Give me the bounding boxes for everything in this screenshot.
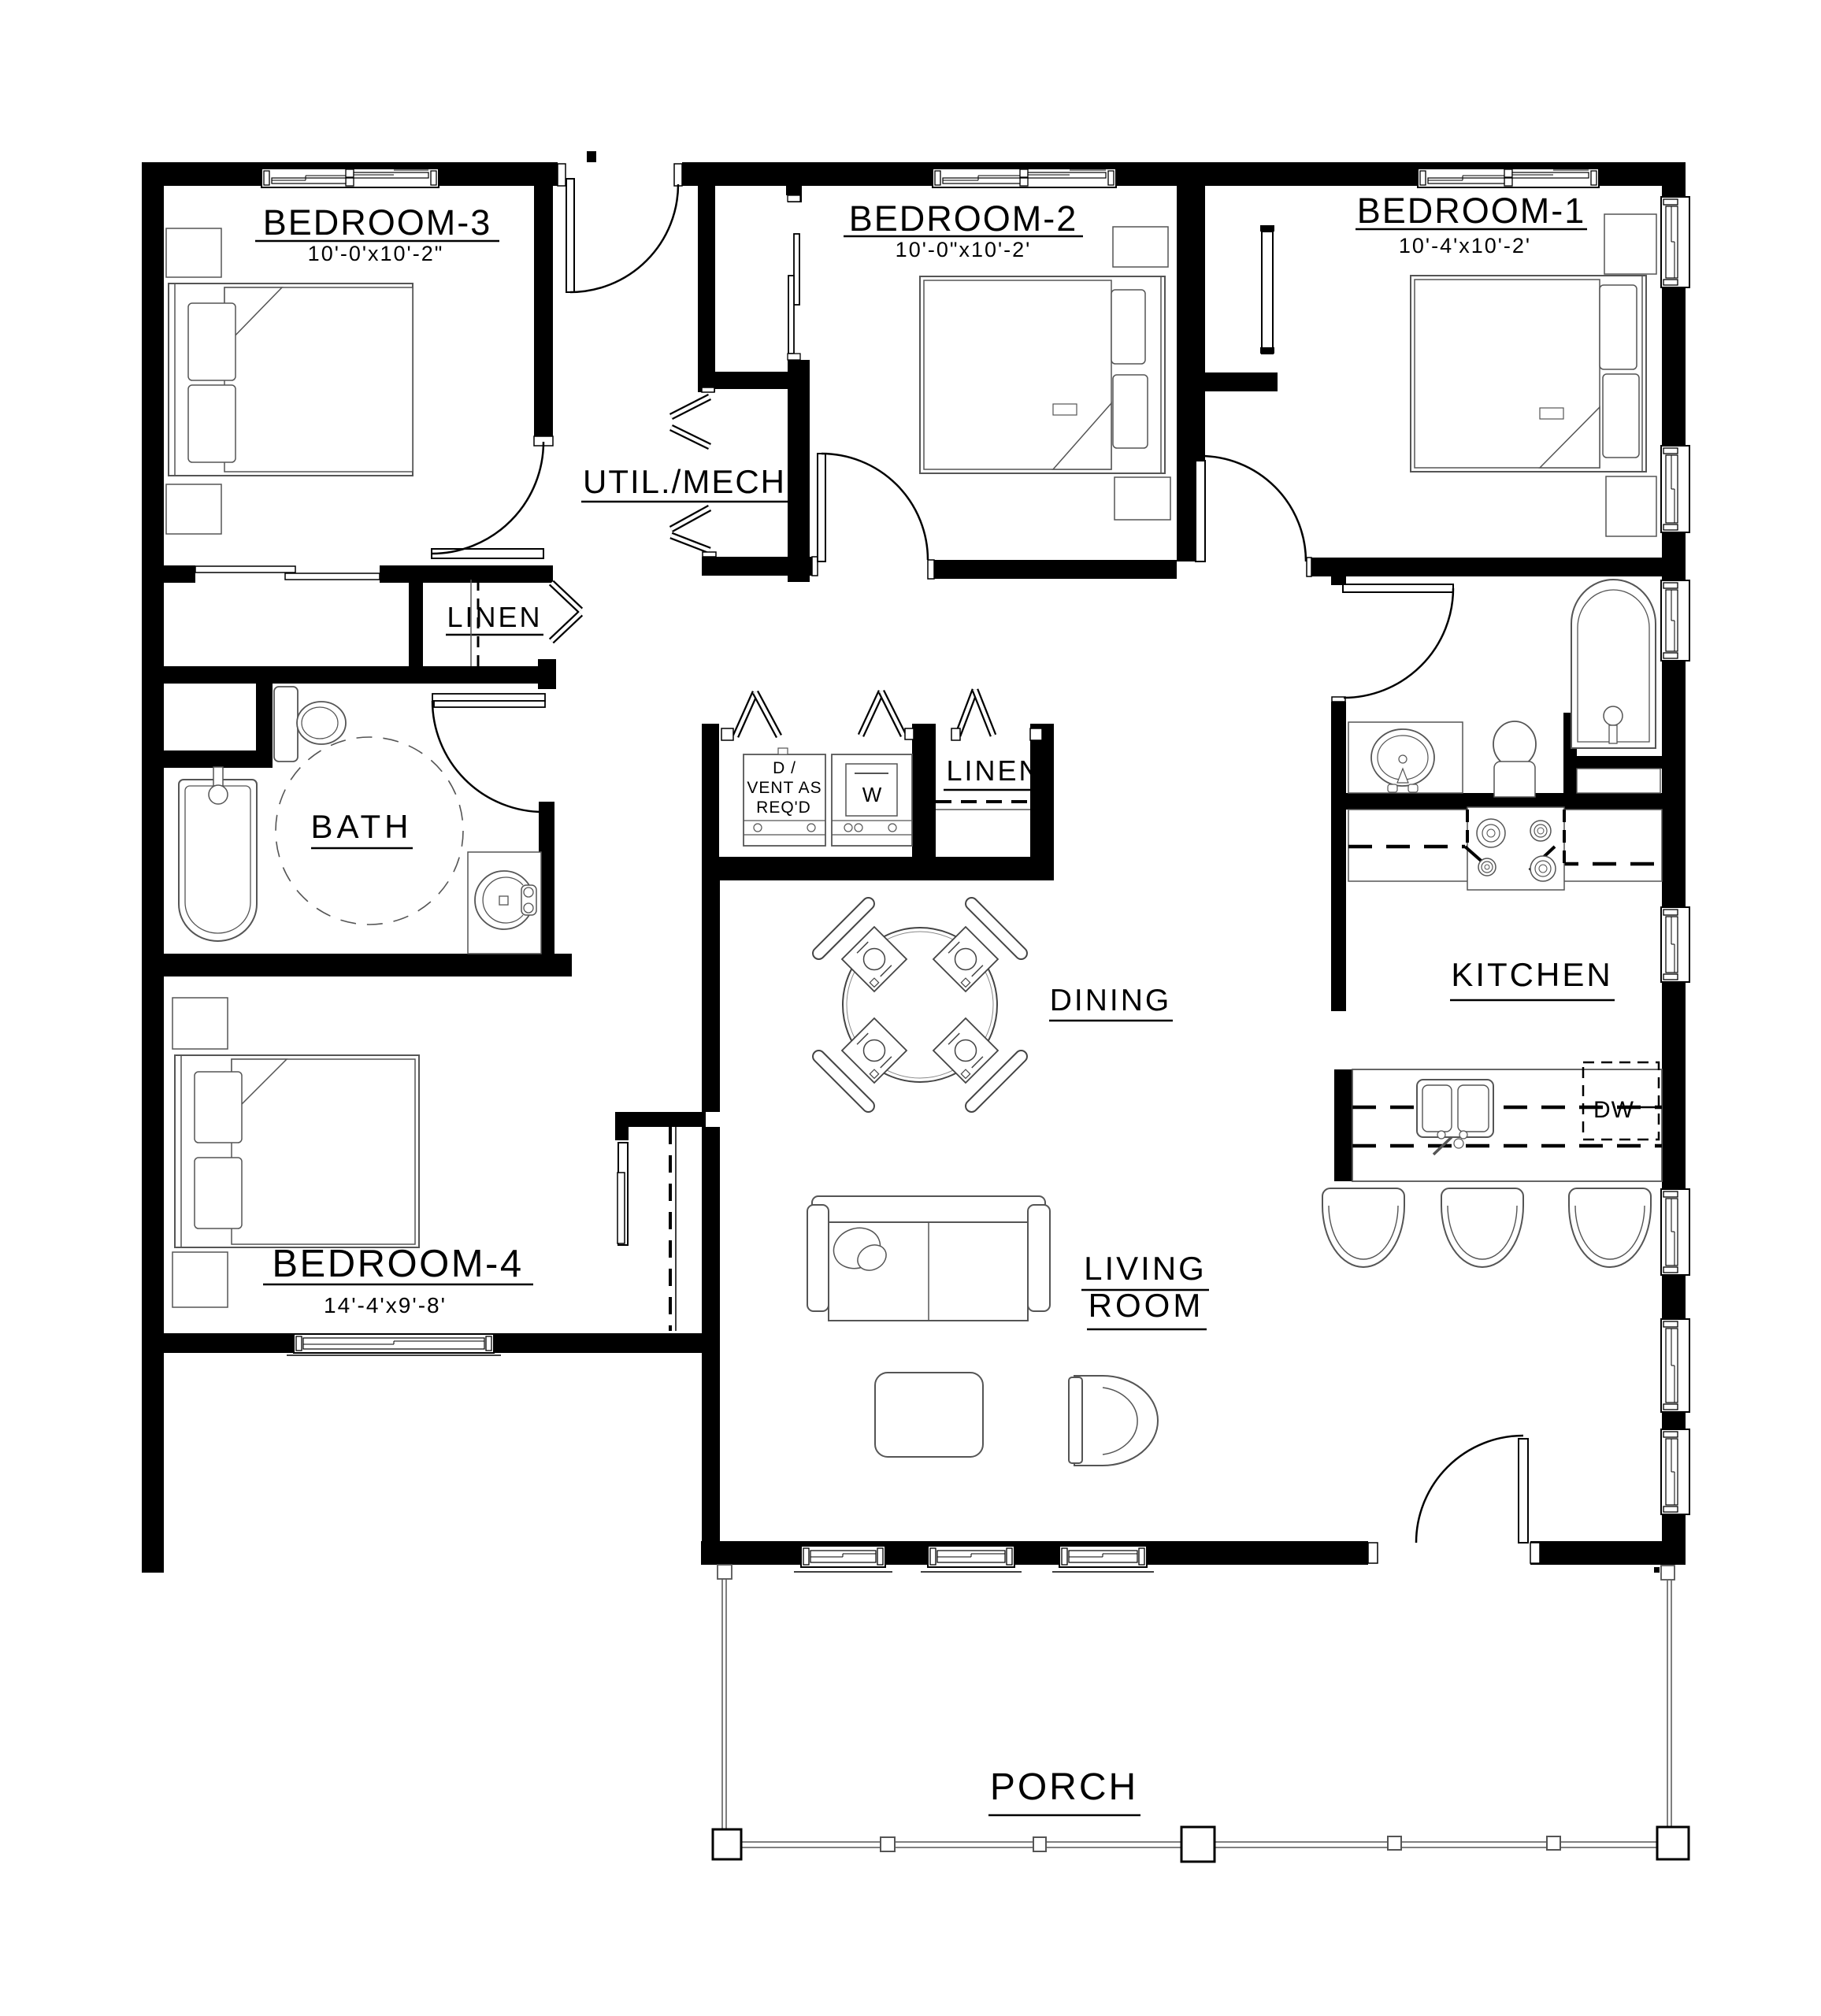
svg-text:BEDROOM-1: BEDROOM-1 <box>1357 191 1586 231</box>
svg-text:DINING: DINING <box>1050 984 1172 1017</box>
svg-text:BATH: BATH <box>311 808 413 845</box>
svg-text:10'-0'x10'-2": 10'-0'x10'-2" <box>308 242 444 265</box>
svg-text:BEDROOM-3: BEDROOM-3 <box>263 202 492 243</box>
svg-text:DW: DW <box>1593 1097 1634 1123</box>
svg-text:LIVING: LIVING <box>1084 1250 1207 1287</box>
svg-text:ROOM: ROOM <box>1089 1287 1204 1324</box>
svg-text:VENT AS: VENT AS <box>747 779 821 797</box>
svg-text:KITCHEN: KITCHEN <box>1451 956 1612 993</box>
svg-text:W: W <box>862 783 882 806</box>
svg-text:REQ'D: REQ'D <box>756 799 811 817</box>
svg-text:BEDROOM-2: BEDROOM-2 <box>849 198 1078 239</box>
svg-text:10'-0"x10'-2': 10'-0"x10'-2' <box>896 238 1032 261</box>
svg-text:PORCH: PORCH <box>990 1766 1138 1808</box>
svg-text:UTIL./MECH: UTIL./MECH <box>583 463 786 500</box>
svg-text:LINEN: LINEN <box>447 601 542 633</box>
svg-text:D /: D / <box>773 759 796 777</box>
svg-text:LINEN: LINEN <box>946 754 1041 787</box>
svg-text:10'-4'x10'-2': 10'-4'x10'-2' <box>1399 234 1531 258</box>
svg-text:BEDROOM-4: BEDROOM-4 <box>272 1243 523 1285</box>
svg-text:14'-4'x9'-8': 14'-4'x9'-8' <box>324 1293 447 1317</box>
